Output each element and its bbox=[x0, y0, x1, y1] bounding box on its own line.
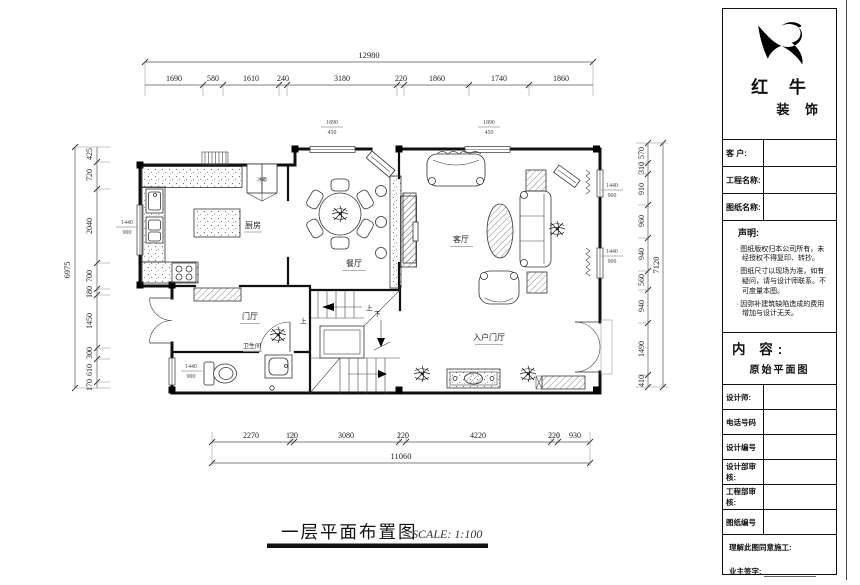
wall-picture bbox=[554, 165, 580, 188]
dim-text: 240 bbox=[277, 74, 289, 83]
dim-text: 2270 bbox=[243, 431, 259, 440]
row-design-no: 设计编号 bbox=[723, 435, 836, 460]
row-design-review: 设计部审核: bbox=[723, 460, 836, 485]
window-label: 450 bbox=[328, 130, 337, 136]
field-project: 工程名称: bbox=[723, 167, 836, 194]
brand-header: 红 牛 装 饰 bbox=[723, 15, 836, 140]
loveseat bbox=[427, 152, 485, 187]
window-label: 1890 bbox=[326, 120, 338, 126]
caption-title: 一层平面布置图 bbox=[281, 522, 418, 542]
dim-text: 1690 bbox=[166, 74, 182, 83]
design-review-label: 设计部审核: bbox=[723, 460, 764, 484]
content-value: 原始平面图 bbox=[723, 361, 836, 376]
approval-section: 理解此图同意施工: 业主签字: bbox=[723, 535, 836, 585]
dim-text: 610 bbox=[85, 364, 94, 376]
washbasin bbox=[265, 355, 292, 378]
project-value bbox=[764, 167, 836, 193]
customer-value bbox=[764, 140, 836, 166]
stair-down-label: 下 bbox=[374, 310, 381, 318]
customer-label: 客 户: bbox=[723, 140, 764, 166]
dimension-chain-left: 6975 425 720 2040 700 180 1450 300 610 1… bbox=[62, 144, 110, 391]
redniu-bull-logo-icon bbox=[748, 15, 812, 73]
sofa bbox=[520, 191, 551, 267]
dim-text: 930 bbox=[569, 431, 581, 440]
floor-plan-area: 12980 1690 580 1610 240 3180 220 1860 17… bbox=[0, 0, 700, 580]
dim-text: 220 bbox=[548, 431, 560, 440]
partition-strip bbox=[390, 176, 401, 288]
plant-icon bbox=[549, 221, 565, 237]
kitchen-furniture bbox=[142, 164, 277, 301]
plant-icon bbox=[270, 327, 286, 343]
row-designer: 设计师: bbox=[723, 385, 836, 410]
dim-text: 7120 bbox=[651, 257, 661, 274]
room-label-bath: 卫生间 bbox=[243, 342, 261, 350]
tv-cabinet bbox=[401, 196, 419, 267]
dining-furniture bbox=[305, 176, 416, 288]
dim-text: 120 bbox=[286, 431, 298, 440]
dim-text: 1860 bbox=[553, 74, 569, 83]
owner-sign-label: 业主签字: bbox=[729, 567, 762, 576]
dim-text: 180 bbox=[85, 286, 94, 298]
plant-icon bbox=[520, 366, 536, 382]
dim-text: 220 bbox=[397, 431, 409, 440]
curtain bbox=[586, 248, 590, 276]
living-furniture bbox=[401, 152, 591, 305]
entry-rug bbox=[447, 369, 500, 388]
row-phone: 电话号码 bbox=[723, 410, 836, 435]
side-table bbox=[526, 170, 546, 191]
dim-text: 940 bbox=[637, 248, 646, 260]
designer-label: 设计师: bbox=[723, 385, 764, 409]
field-customer: 客 户: bbox=[723, 140, 836, 167]
drawing-no-label: 图纸编号 bbox=[723, 510, 764, 534]
dim-text: 1610 bbox=[243, 74, 259, 83]
dim-text: 6975 bbox=[62, 262, 72, 279]
dim-text: 1860 bbox=[429, 74, 445, 83]
window-label: 1440 bbox=[121, 220, 133, 226]
room-label-entry: 入户门厅 bbox=[473, 332, 505, 342]
dim-text: 11060 bbox=[391, 451, 412, 461]
window-label: 1890 bbox=[483, 120, 495, 126]
dim-text: 220 bbox=[395, 74, 407, 83]
entry-furniture bbox=[414, 366, 585, 389]
statement-section: 声明: 图纸版权归本公司所有，未经授权不得复印、转抄。 图纸尺寸以现场为准，如有… bbox=[723, 221, 836, 333]
window-label: 900 bbox=[187, 374, 196, 380]
row-drawing-no: 图纸编号 bbox=[723, 510, 836, 535]
statement-item: 图纸版权归本公司所有，未经授权不得复印、转抄。 bbox=[736, 245, 831, 265]
curtain bbox=[586, 170, 590, 194]
room-label-fridge: 冰箱 bbox=[257, 176, 267, 183]
window-label: 450 bbox=[485, 130, 494, 136]
dimension-chain-bottom: 2270 120 3080 220 4220 220 930 11060 bbox=[209, 431, 593, 466]
stair-up-label: 上 bbox=[300, 316, 307, 325]
threshold-hatch bbox=[194, 288, 241, 301]
dim-text: 170 bbox=[85, 379, 94, 391]
drawing-caption: 一层平面布置图 SCALE: 1:100 bbox=[267, 522, 488, 548]
stairs: 上 上 下 bbox=[300, 290, 400, 393]
row-engineering-review: 工程部审核: bbox=[723, 485, 836, 510]
side-table bbox=[527, 272, 547, 293]
dim-text: 580 bbox=[207, 74, 219, 83]
statement-item: 因弥补建筑缺陷造成的费用增加与设计无关。 bbox=[736, 300, 831, 320]
room-label-kitchen: 厨房 bbox=[245, 220, 261, 230]
brand-name: 红 牛 bbox=[723, 73, 836, 98]
content-heading: 内 容: bbox=[732, 338, 836, 358]
window-label: 1440 bbox=[606, 183, 618, 189]
window-label: 900 bbox=[608, 259, 617, 265]
statement-item: 图纸尺寸以现场为准，如有疑问，请与设计师联系。不可度量本图。 bbox=[736, 267, 831, 296]
dim-text: 720 bbox=[85, 169, 94, 181]
statement-heading: 声明: bbox=[738, 227, 831, 240]
room-label-dining: 餐厅 bbox=[346, 259, 362, 268]
drawing-value bbox=[764, 194, 836, 220]
window-label: 900 bbox=[123, 230, 132, 236]
dim-text: 2040 bbox=[85, 218, 94, 234]
dimension-chain-right: 7120 570 310 910 960 940 560 940 1490 41… bbox=[636, 140, 668, 390]
dim-text: 960 bbox=[637, 215, 646, 227]
dim-text: 910 bbox=[637, 183, 646, 195]
dim-text: 1490 bbox=[637, 341, 646, 357]
dim-text: 3180 bbox=[334, 74, 350, 83]
dim-text: 1450 bbox=[85, 313, 94, 329]
consent-text: 理解此图同意施工: bbox=[729, 542, 831, 553]
plant-icon bbox=[414, 366, 430, 382]
dim-text: 410 bbox=[637, 375, 646, 387]
brand-subname: 装 饰 bbox=[723, 99, 836, 118]
dim-text: 560 bbox=[637, 274, 646, 286]
floor-plan-drawing: 12980 1690 580 1610 240 3180 220 1860 17… bbox=[0, 0, 700, 580]
armchair bbox=[479, 271, 519, 304]
phone-label: 电话号码 bbox=[723, 410, 764, 434]
dim-text: 940 bbox=[637, 300, 646, 312]
foyer-bath-furniture bbox=[204, 327, 292, 390]
stove bbox=[172, 263, 196, 282]
toilet bbox=[204, 362, 237, 385]
title-block: 红 牛 装 饰 客 户: 工程名称: 图纸名称: 声明: 图纸版权归本公司所有，… bbox=[722, 8, 837, 575]
drawing-label: 图纸名称: bbox=[723, 194, 764, 220]
caption-scale: SCALE: 1:100 bbox=[412, 527, 482, 541]
dim-text: 1740 bbox=[491, 74, 507, 83]
dim-text: 12980 bbox=[358, 50, 379, 60]
room-label-foyer: 门厅 bbox=[242, 311, 258, 321]
dim-text: 700 bbox=[85, 270, 94, 282]
room-label-living: 客厅 bbox=[453, 234, 469, 244]
dim-text: 4220 bbox=[470, 431, 486, 440]
dimension-chain-top: 12980 1690 580 1610 240 3180 220 1860 17… bbox=[142, 50, 596, 96]
caption-underline bbox=[267, 544, 488, 549]
dim-text: 310 bbox=[637, 162, 646, 174]
window-label: 900 bbox=[608, 193, 617, 199]
window-label: 1440 bbox=[606, 249, 618, 255]
kitchen-island bbox=[194, 209, 240, 237]
dim-text: 3080 bbox=[338, 431, 354, 440]
engineering-review-label: 工程部审核: bbox=[723, 485, 764, 509]
design-no-label: 设计编号 bbox=[723, 435, 764, 459]
content-section: 内 容: 原始平面图 bbox=[723, 338, 836, 385]
coffee-table bbox=[487, 204, 513, 258]
shoe-cabinet bbox=[536, 376, 585, 389]
window-label: 1440 bbox=[185, 364, 197, 370]
signature-line bbox=[764, 568, 816, 577]
stair-up-label: 上 bbox=[366, 303, 373, 312]
dim-text: 300 bbox=[85, 347, 94, 359]
sink-double bbox=[146, 217, 163, 243]
sheet-border bbox=[846, 0, 847, 580]
project-label: 工程名称: bbox=[723, 167, 764, 193]
sink bbox=[146, 189, 163, 213]
floor-drain bbox=[270, 386, 274, 390]
dim-text: 425 bbox=[85, 148, 94, 160]
field-drawing: 图纸名称: bbox=[723, 194, 836, 221]
dim-text: 570 bbox=[637, 147, 646, 159]
